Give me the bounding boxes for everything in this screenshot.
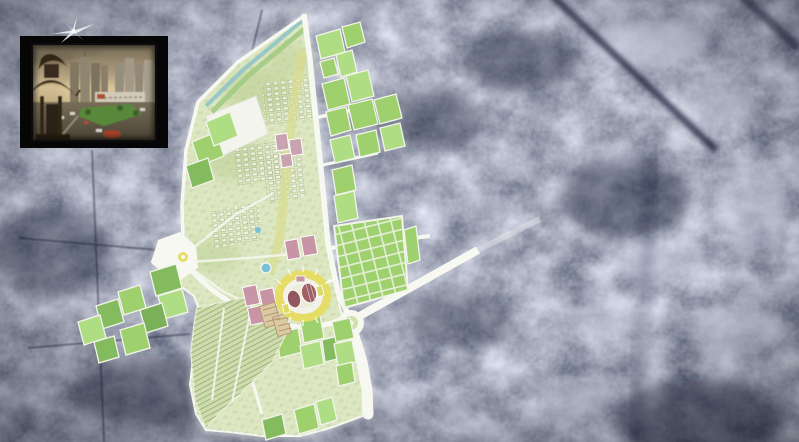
green-parcel [356,130,380,157]
pond [255,227,261,233]
pink-block [280,153,293,167]
pink-block [301,235,318,256]
green-parcel [334,340,356,366]
green-parcel [336,362,355,386]
green-parcel [380,123,405,151]
inset-photo-image [24,42,157,142]
green-parcel [330,135,355,163]
green-parcel [348,99,378,130]
pink-block [285,239,301,260]
green-parcel [332,318,354,342]
green-parcel [326,107,351,136]
inset-warm-overlay [33,45,155,140]
stadium-north-block [296,276,305,282]
inset-photo [20,36,168,148]
plaza-circle-core [181,255,185,259]
pink-block [275,133,289,151]
green-parcel [320,58,338,78]
pond [261,263,271,273]
green-parcel [294,404,319,434]
green-parcel [332,165,356,195]
green-parcel [300,341,324,369]
sparkle-core [71,29,75,33]
scene [0,0,799,442]
green-parcel [334,191,358,223]
video-frame [0,0,799,442]
